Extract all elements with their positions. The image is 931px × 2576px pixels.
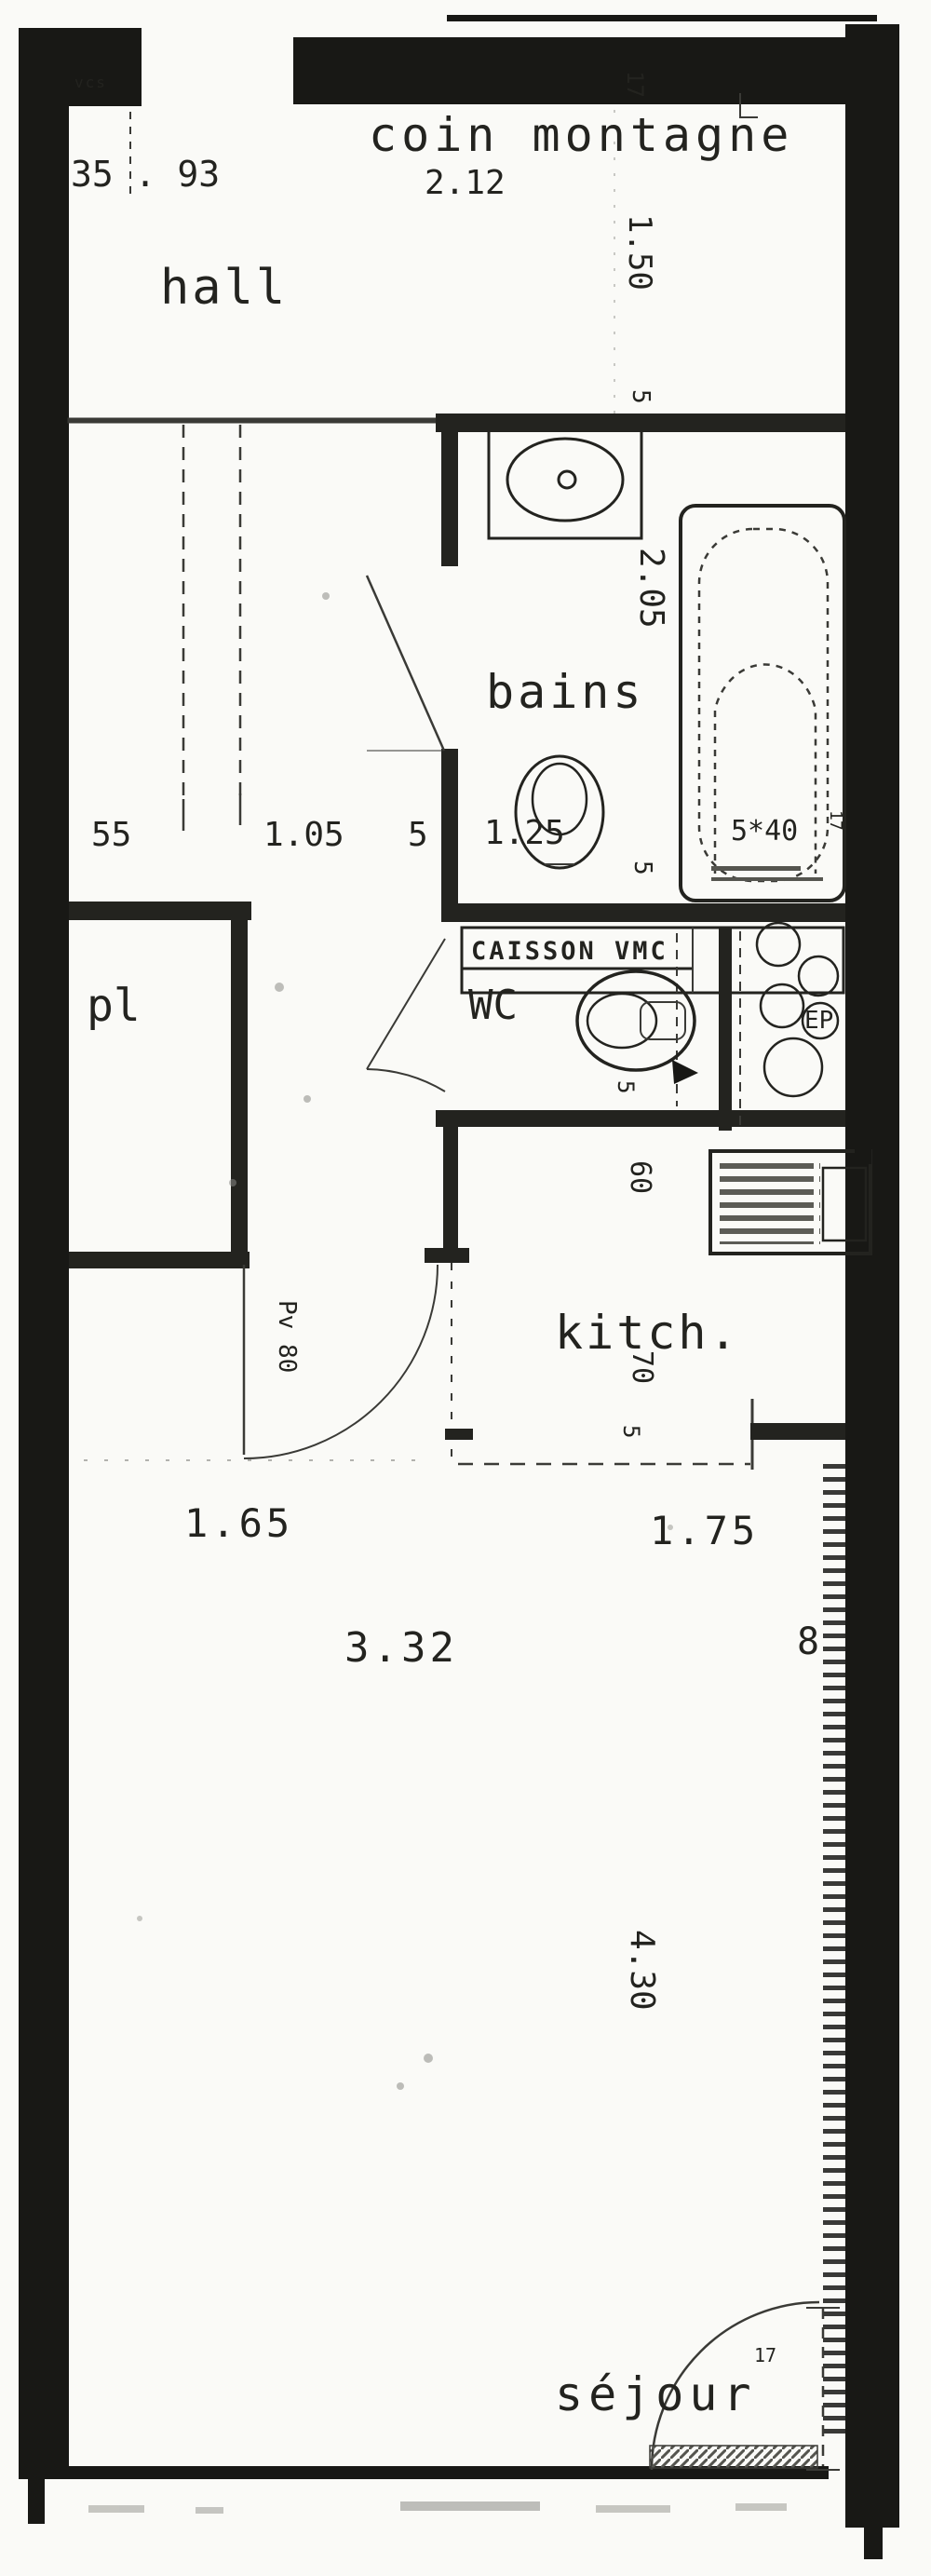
dim-1-25: 1.25 [484, 814, 565, 852]
washbasin-bowl [507, 439, 623, 521]
interior-walls [69, 414, 845, 1268]
dim-17-top: 17 [622, 71, 648, 98]
dim-5x40: 5*40 [731, 815, 798, 847]
window-wall-start-bar [750, 1423, 845, 1440]
speckle-dot [275, 983, 284, 992]
dim-5-wc: 5 [613, 1080, 639, 1093]
dim-35-93: 35 . 93 [71, 154, 220, 195]
top-facade-line [447, 15, 877, 21]
bains-door-leaf [367, 576, 444, 751]
glazed-wall-window-hatch [823, 1457, 853, 2440]
smudge [596, 2505, 670, 2513]
dim-1-75: 1.75 [650, 1508, 759, 1553]
balcony-threshold-hatch [650, 2446, 817, 2468]
speckle-dot [322, 592, 330, 600]
dim-4-30: 4.30 [623, 1930, 661, 2011]
bains-west-wall-upper [441, 430, 458, 566]
dim-5-kitchen: 5 [618, 1425, 644, 1438]
bains-west-wall-lower [441, 749, 458, 907]
room-label-wc: WC [468, 982, 518, 1029]
dim-60: 60 [624, 1160, 656, 1194]
wc-toilet-inner [587, 994, 656, 1048]
pl-south-wall [69, 1252, 250, 1268]
dim-70: 70 [626, 1350, 658, 1384]
ep-pipe-circle-3 [761, 984, 803, 1027]
kitchen-west-wall [443, 1125, 458, 1255]
kitchen-door-jamb [425, 1248, 469, 1263]
dim-55: 55 [91, 816, 131, 854]
top-wall [293, 37, 852, 104]
dim-1-65: 1.65 [184, 1500, 293, 1546]
dim-5-mid: 5 [408, 816, 428, 854]
pl-east-wall [231, 920, 248, 1267]
right-wall [845, 24, 899, 2528]
door-label-pv-80: Pv 80 [273, 1300, 301, 1373]
dim-8: 8 [797, 1620, 819, 1663]
smudge [88, 2505, 144, 2513]
room-label-bains: bains [486, 665, 645, 719]
ep-pipe-circle-5 [764, 1038, 822, 1096]
speckle-dot [304, 1095, 311, 1103]
ep-pipe-circle-1 [757, 923, 800, 966]
speckle-dot [229, 1179, 236, 1186]
dim-5-bains-bottom: 5 [628, 861, 656, 875]
bains-wc-divider-wall [441, 903, 845, 922]
outer-walls [19, 15, 899, 2559]
wc-door-arc [367, 1069, 445, 1091]
wc-corner-mark [672, 1060, 698, 1084]
label-ep: EP [804, 1007, 833, 1035]
left-wall-stub [28, 2479, 45, 2524]
speckle-dot [397, 2082, 404, 2090]
dim-3-32: 3.32 [344, 1624, 458, 1672]
dim-5-bains-top: 5 [627, 389, 654, 404]
wc-south-wall [436, 1110, 845, 1127]
dim-1-05: 1.05 [263, 816, 344, 854]
kitchen-faucet [855, 1149, 871, 1164]
floorplan-page: vcs 35 . 93 hall coin montagne 2.12 17 1… [0, 0, 931, 2576]
dim-17-balcony: 17 [754, 2344, 776, 2366]
room-label-sejour: séjour [555, 2367, 757, 2421]
right-wall-stub [864, 2526, 883, 2559]
smudge [400, 2501, 540, 2511]
ep-pipe-circle-2 [799, 956, 838, 996]
wc-door-leaf [367, 939, 445, 1069]
speckle-dot [668, 1525, 673, 1530]
dim-1-50: 1.50 [621, 214, 658, 291]
dim-2-12: 2.12 [425, 164, 506, 202]
dim-2-05: 2.05 [632, 548, 670, 629]
label-caisson-vmc: CAISSON VMC [471, 937, 668, 966]
room-label-coin-montagne: coin montagne [369, 108, 793, 162]
dim-17-tub: 17 [826, 810, 845, 831]
bathtub-dim-bar-1 [711, 866, 801, 871]
closet-top-line [69, 419, 436, 422]
bathtub-dim-bar-2 [711, 877, 823, 881]
label-vcs: vcs [74, 74, 107, 91]
smudge [196, 2507, 223, 2514]
speckle-dot [137, 1916, 142, 1921]
washbasin-drain [559, 471, 575, 488]
wc-toilet-tank [641, 1002, 685, 1039]
speckle-dot [424, 2054, 433, 2063]
kitchen-sink-drainboard-hatch [720, 1162, 820, 1244]
left-wall [19, 28, 69, 2479]
room-label-pl: pl [87, 980, 141, 1032]
smudge [735, 2503, 787, 2511]
room-label-hall: hall [160, 260, 288, 316]
wc-duct-divider-wall [719, 928, 732, 1131]
dim-tick-165 [445, 1429, 473, 1440]
pl-north-wall [69, 902, 251, 920]
floorplan-svg: vcs 35 . 93 hall coin montagne 2.12 17 1… [0, 0, 931, 2576]
